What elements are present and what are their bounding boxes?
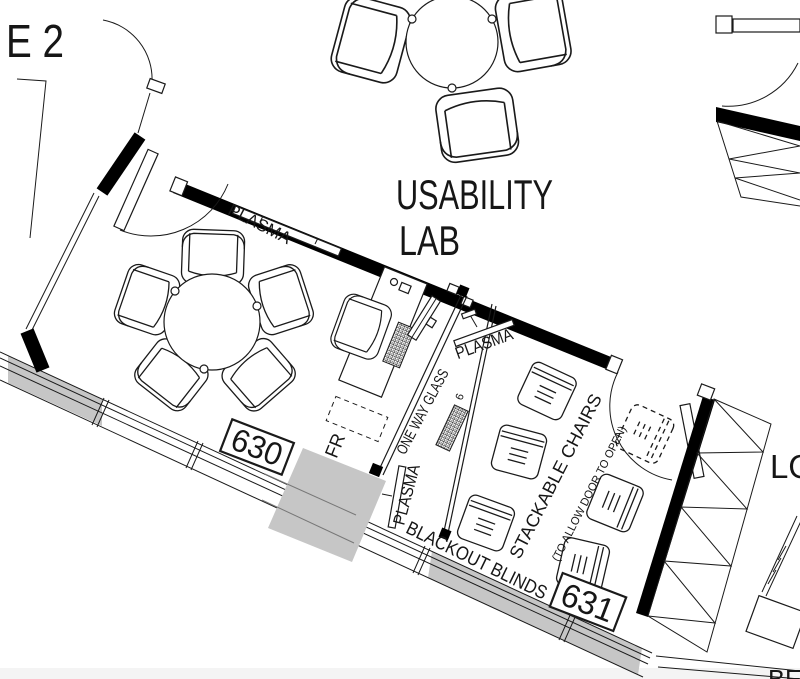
- edge-text-lo: LO: [770, 448, 800, 485]
- tub-chair: [493, 0, 573, 74]
- title-lab: LAB: [399, 217, 460, 264]
- title-usability: USABILITY: [396, 171, 553, 218]
- edge-text-be: BE: [768, 664, 800, 679]
- floor-plan-canvas: 630 631 USABILITY LAB E 2 LO BE PLASMA P…: [0, 0, 800, 679]
- edge-text-e2: E 2: [6, 15, 64, 67]
- tub-chair: [434, 86, 520, 164]
- floor-strip: [0, 668, 800, 679]
- equipment-cup: [391, 279, 398, 286]
